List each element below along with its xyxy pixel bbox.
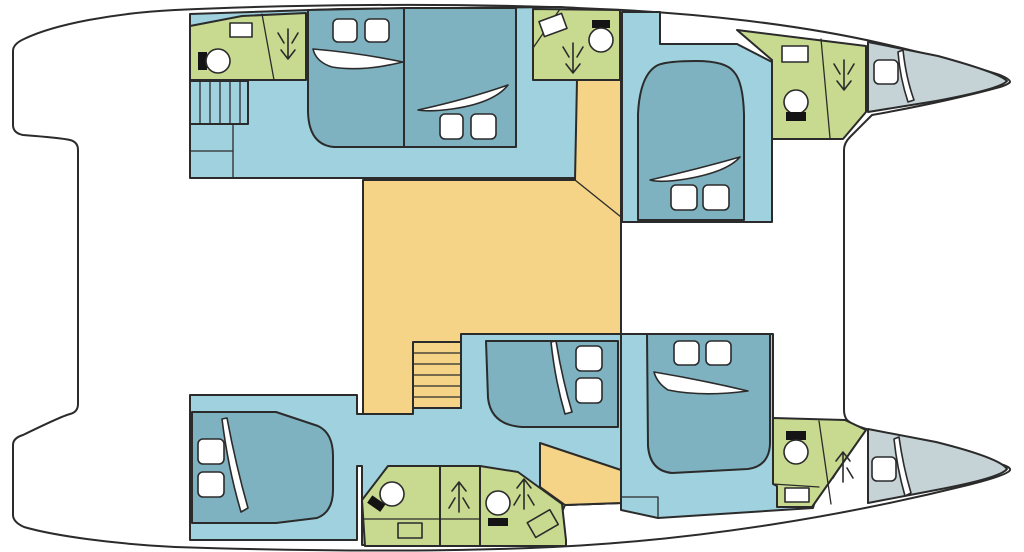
berth-fwd-port <box>638 61 744 220</box>
berth-aft-port-1 <box>308 8 404 147</box>
berth-mid-starboard <box>486 341 618 427</box>
hatch-icon <box>874 60 898 84</box>
pillow <box>440 114 463 139</box>
hatch-icon <box>872 457 896 481</box>
pillow <box>706 341 731 365</box>
pillow <box>198 439 224 464</box>
bathroom-mid-port <box>533 9 620 80</box>
pillow <box>198 472 224 497</box>
toilet-icon <box>589 20 613 52</box>
pillow <box>333 19 357 42</box>
pillow <box>576 346 602 371</box>
floorplan-svg <box>0 0 1024 552</box>
pillow <box>365 19 389 42</box>
bathroom-aft-starboard-shower <box>440 466 480 546</box>
pillow <box>674 341 699 365</box>
sink-icon <box>782 46 808 62</box>
toilet-icon <box>784 90 808 121</box>
sink-icon <box>230 23 252 37</box>
catamaran-floorplan <box>0 0 1024 552</box>
pillow <box>671 185 697 210</box>
berth-aft-port-2 <box>404 8 516 147</box>
berth-fwd-starboard <box>647 334 770 473</box>
toilet-icon <box>784 431 808 464</box>
sink-icon <box>785 488 809 502</box>
bow-locker-port <box>868 42 1007 112</box>
toilet-icon <box>486 491 510 526</box>
pillow <box>471 114 496 139</box>
pillow <box>703 185 729 210</box>
bathroom-aft-port <box>190 13 306 80</box>
toilet-icon <box>198 49 230 73</box>
berth-aft-starboard <box>192 412 333 523</box>
pillow <box>576 378 602 403</box>
